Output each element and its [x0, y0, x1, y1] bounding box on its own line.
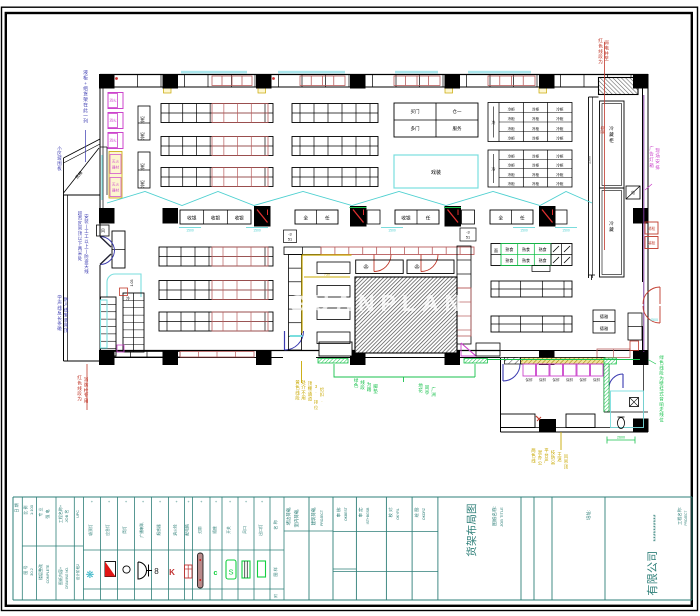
svg-text:冷柜: 冷柜 — [140, 116, 145, 124]
svg-text:30.2: 30.2 — [29, 567, 34, 576]
svg-text:冷柜: 冷柜 — [140, 132, 145, 140]
svg-text:冷: 冷 — [492, 119, 496, 125]
svg-text:任: 任 — [426, 215, 431, 222]
svg-text:OKYRL: OKYRL — [396, 508, 400, 520]
svg-text:.: . — [321, 397, 322, 402]
svg-text:JOB 名: JOB 名 — [63, 510, 69, 523]
svg-text:收银: 收银 — [401, 215, 411, 222]
svg-text:垫: 垫 — [373, 388, 378, 394]
svg-text:德雅: 德雅 — [600, 313, 608, 320]
svg-text:熟食: 熟食 — [505, 246, 513, 252]
svg-text:冷: 冷 — [492, 166, 496, 172]
svg-text:冷柜: 冷柜 — [532, 106, 540, 111]
svg-text:审 核:: 审 核: — [335, 507, 342, 518]
svg-text:绿: 绿 — [659, 354, 664, 360]
svg-text:冷柜: 冷柜 — [140, 163, 145, 171]
svg-text:保鲜: 保鲜 — [552, 377, 560, 382]
svg-text:亭: 亭 — [425, 389, 430, 395]
svg-text:专 业: 专 业 — [37, 507, 43, 516]
svg-text:冷: 冷 — [609, 125, 614, 132]
svg-text:OKBEST: OKBEST — [344, 507, 348, 521]
svg-text:图 号: 图 号 — [22, 565, 28, 574]
svg-text:任: 任 — [325, 215, 330, 222]
svg-text:柜: 柜 — [609, 137, 614, 144]
svg-text:保鲜: 保鲜 — [539, 377, 547, 382]
svg-text:烟感器: 烟感器 — [156, 524, 161, 536]
svg-text:培址:: 培址: — [585, 510, 592, 520]
svg-text:51: 51 — [466, 236, 470, 240]
svg-text:电: 电 — [604, 44, 609, 50]
svg-text:熟食: 熟食 — [539, 246, 547, 252]
svg-text:-3: -3 — [466, 231, 469, 235]
svg-text:冷柜: 冷柜 — [556, 181, 564, 186]
svg-text:K: K — [169, 568, 175, 577]
svg-text:全: 全 — [303, 215, 308, 221]
svg-text:1500: 1500 — [520, 229, 528, 233]
svg-text:1500: 1500 — [253, 229, 261, 233]
svg-text:1500: 1500 — [186, 229, 194, 233]
svg-text:器材: 器材 — [112, 188, 119, 193]
svg-text:保鲜: 保鲜 — [525, 377, 533, 382]
svg-text:冷柜: 冷柜 — [532, 153, 540, 158]
svg-text:货: 货 — [83, 91, 88, 98]
svg-text:-3: -3 — [288, 233, 291, 237]
svg-text:藏: 藏 — [609, 131, 614, 138]
svg-text:组: 组 — [83, 85, 88, 92]
svg-text:货架布局图: 货架布局图 — [465, 503, 478, 557]
svg-text:段: 段 — [295, 395, 300, 402]
svg-text:灭火: 灭火 — [112, 159, 119, 164]
svg-text:熟食: 熟食 — [522, 246, 530, 252]
svg-text:色: 色 — [354, 382, 359, 388]
svg-text:洲: 洲 — [431, 392, 436, 397]
svg-text:顶: 顶 — [64, 328, 69, 334]
svg-text:戏装: 戏装 — [431, 169, 441, 176]
svg-text:收银: 收银 — [211, 215, 221, 222]
svg-text:GUANPLAN: GUANPLAN — [289, 290, 467, 316]
svg-text:处: 处 — [78, 255, 83, 262]
svg-text:楼层整改: 楼层整改 — [37, 564, 43, 580]
svg-text:用: 用 — [84, 399, 89, 405]
svg-text:冷柜: 冷柜 — [508, 106, 516, 111]
svg-text:用: 用 — [301, 396, 306, 402]
svg-text:全: 全 — [498, 215, 503, 221]
svg-text:强 电: 强 电 — [44, 509, 50, 518]
svg-text:冷柜: 冷柜 — [556, 106, 564, 111]
svg-text:日 期: 日 期 — [14, 503, 20, 513]
svg-text:冷柜: 冷柜 — [532, 116, 540, 121]
svg-text:✇: ✇ — [363, 264, 368, 271]
svg-text:筒灯: 筒灯 — [122, 526, 127, 534]
svg-text:配电箱: 配电箱 — [185, 524, 190, 536]
svg-text:❋: ❋ — [86, 570, 94, 581]
svg-text:风口: 风口 — [243, 526, 247, 534]
svg-text:插座: 插座 — [212, 526, 217, 534]
svg-text:花: 花 — [418, 387, 423, 394]
svg-text:冷: 冷 — [126, 296, 130, 301]
svg-text:迷: 迷 — [557, 456, 562, 463]
svg-text:1500: 1500 — [562, 229, 570, 233]
svg-text:色: 色 — [659, 359, 664, 365]
svg-text:冷柜: 冷柜 — [556, 153, 564, 158]
svg-text:冷柜: 冷柜 — [556, 116, 564, 121]
svg-text:+: + — [142, 499, 145, 504]
svg-text:绿: 绿 — [354, 377, 359, 383]
svg-text:**********: ********** — [653, 514, 660, 542]
svg-text:色: 色 — [598, 42, 603, 48]
svg-text:2600: 2600 — [617, 436, 625, 440]
svg-text:线: 线 — [531, 457, 536, 463]
svg-text:线: 线 — [84, 268, 89, 274]
svg-text:附: 附 — [273, 594, 278, 598]
svg-text:✇: ✇ — [414, 264, 419, 271]
svg-text:消栓: 消栓 — [648, 241, 656, 246]
svg-text:冷: 冷 — [609, 220, 614, 227]
svg-text:段: 段 — [360, 384, 365, 391]
svg-text:+: + — [125, 499, 128, 504]
svg-text:+: + — [108, 499, 111, 504]
svg-text:熟食: 熟食 — [522, 257, 530, 263]
svg-text:广播喇叭: 广播喇叭 — [139, 522, 144, 537]
svg-text:吸顶灯: 吸顶灯 — [88, 524, 93, 536]
svg-text:冷柜: 冷柜 — [556, 172, 564, 177]
svg-text:.: . — [315, 389, 316, 394]
svg-text:收银: 收银 — [187, 215, 197, 222]
svg-text:公: 公 — [538, 460, 543, 465]
svg-text:冷柜: 冷柜 — [508, 116, 516, 121]
svg-text:任: 任 — [520, 215, 525, 222]
svg-text:在: 在 — [83, 101, 88, 108]
svg-text:熟食: 熟食 — [539, 257, 547, 263]
svg-text:冷柜: 冷柜 — [532, 172, 540, 177]
svg-text:S: S — [228, 568, 233, 577]
svg-text:踏: 踏 — [367, 386, 372, 393]
svg-text:+: + — [91, 499, 94, 504]
svg-text:吊: 吊 — [551, 460, 555, 466]
svg-text:图 样: 图 样 — [272, 567, 279, 577]
svg-text:堵边荷载,: 堵边荷载, — [285, 507, 292, 526]
svg-text:严: 严 — [544, 458, 549, 464]
svg-text:线: 线 — [77, 385, 82, 391]
svg-text:色: 色 — [77, 379, 82, 385]
svg-text:绘 图:: 绘 图: — [413, 507, 420, 518]
svg-text:线: 线 — [57, 304, 62, 310]
svg-text:设计阶段2: 设计阶段2 — [75, 564, 80, 580]
svg-text:冷柜: 冷柜 — [508, 136, 516, 141]
svg-text:为: 为 — [598, 59, 603, 66]
svg-text:图纸名称:: 图纸名称: — [491, 506, 498, 526]
svg-text:8: 8 — [154, 567, 159, 576]
svg-text:冷柜: 冷柜 — [532, 126, 540, 131]
svg-text:冷柜: 冷柜 — [508, 153, 516, 158]
svg-text:建筑荷载,: 建筑荷载, — [310, 507, 317, 526]
svg-text:挂: 挂 — [659, 385, 664, 391]
svg-text:OKDRZ: OKDRZ — [422, 508, 426, 520]
svg-text:仓一: 仓一 — [453, 108, 462, 114]
svg-text:审 定:: 审 定: — [357, 507, 364, 518]
svg-text:岗: 岗 — [425, 384, 430, 390]
svg-text:此: 此 — [83, 107, 88, 114]
svg-text:+: + — [175, 499, 178, 504]
svg-text:保鲜: 保鲜 — [566, 377, 574, 382]
svg-text:风: 风 — [101, 228, 105, 233]
svg-text:有限公司: 有限公司 — [645, 550, 659, 595]
svg-text:架: 架 — [83, 97, 88, 103]
svg-text:德雅: 德雅 — [600, 325, 608, 332]
svg-text:冷柜: 冷柜 — [140, 180, 145, 188]
svg-text:消火栓: 消火栓 — [173, 524, 178, 536]
svg-text:冷柜: 冷柜 — [508, 181, 516, 186]
svg-text:收银: 收银 — [235, 215, 245, 222]
svg-text:学: 学 — [57, 294, 62, 300]
svg-text:熟食: 熟食 — [505, 257, 513, 263]
svg-text:消火: 消火 — [109, 118, 117, 123]
svg-text:线: 线 — [64, 306, 69, 312]
svg-text:线: 线 — [598, 48, 603, 54]
svg-text:4500: 4500 — [650, 318, 658, 322]
svg-text:c: c — [214, 570, 218, 577]
svg-text:冷柜: 冷柜 — [508, 172, 516, 177]
svg-text:IST+BGSB: IST+BGSB — [366, 507, 370, 524]
svg-text:器材: 器材 — [112, 165, 119, 170]
svg-text:+: + — [261, 499, 264, 504]
svg-text:红: 红 — [77, 374, 82, 380]
svg-text:1500: 1500 — [388, 229, 396, 233]
svg-text:COMPLETE: COMPLETE — [46, 564, 50, 583]
svg-text:箱: 箱 — [649, 162, 654, 169]
svg-text:1:100: 1:100 — [29, 504, 34, 515]
svg-text:冷柜: 冷柜 — [532, 136, 540, 141]
svg-text:冷柜: 冷柜 — [508, 163, 516, 168]
svg-text:DRAWING NO.: DRAWING NO. — [65, 567, 69, 589]
svg-text:电: 电 — [631, 189, 635, 195]
svg-text:服务: 服务 — [453, 125, 462, 132]
svg-text:面: 面 — [494, 248, 498, 253]
svg-text:排: 排 — [655, 164, 660, 171]
svg-text:色: 色 — [295, 384, 300, 390]
svg-text:色: 色 — [531, 452, 536, 458]
svg-text:+: + — [84, 82, 87, 87]
svg-text:位: 位 — [659, 416, 664, 422]
svg-text:室内荷载,: 室内荷载, — [293, 509, 300, 528]
svg-text:冷柜: 冷柜 — [532, 163, 540, 168]
svg-text:至: 至 — [604, 56, 609, 61]
svg-text:顶: 顶 — [564, 464, 569, 470]
svg-text:冷柜: 冷柜 — [556, 126, 564, 131]
svg-text:校 对:: 校 对: — [387, 507, 394, 518]
svg-text:冷柜: 冷柜 — [556, 163, 564, 168]
svg-text:+: + — [215, 499, 218, 504]
svg-text:条: 条 — [57, 320, 62, 326]
svg-text:板: 板 — [57, 165, 62, 172]
svg-text:名 称: 名 称 — [272, 520, 279, 530]
svg-text:PROJECT: PROJECT — [320, 510, 324, 526]
svg-text:灭火: 灭火 — [112, 182, 119, 187]
svg-text:列: 列 — [83, 118, 88, 125]
svg-text:消火: 消火 — [109, 98, 117, 103]
svg-text:碰: 碰 — [57, 325, 62, 331]
svg-text:买门: 买门 — [411, 108, 420, 115]
svg-text:工程名称:: 工程名称: — [676, 507, 683, 525]
svg-text:线: 线 — [295, 389, 300, 395]
svg-text:藏: 藏 — [609, 226, 614, 233]
svg-text:线: 线 — [659, 364, 664, 370]
svg-text:冷柜: 冷柜 — [508, 126, 516, 131]
svg-text:壁: 壁 — [659, 380, 664, 386]
svg-text:冷柜: 冷柜 — [532, 181, 540, 186]
svg-text:UPC: UPC — [76, 510, 80, 518]
svg-text:+: + — [159, 499, 162, 504]
svg-text:灯带: 灯带 — [197, 526, 202, 534]
svg-text:JOB TITLE: JOB TITLE — [499, 507, 504, 527]
svg-text:柜: 柜 — [83, 74, 88, 81]
svg-text:红: 红 — [598, 37, 603, 43]
svg-text:+: + — [245, 499, 248, 504]
svg-text:弱电: 弱电 — [599, 126, 605, 134]
svg-text:51: 51 — [288, 238, 292, 242]
svg-text:位: 位 — [314, 404, 318, 410]
svg-text:图纸内容+: 图纸内容+ — [57, 566, 63, 585]
svg-text:冷柜: 冷柜 — [556, 136, 564, 141]
svg-text:1.03: 1.03 — [130, 280, 134, 287]
svg-text:消栓: 消栓 — [648, 226, 656, 231]
svg-text:+: + — [229, 499, 232, 504]
svg-text:线: 线 — [659, 411, 664, 417]
svg-text:工程名称+: 工程名称+ — [57, 504, 63, 523]
svg-text:+: + — [200, 499, 203, 504]
svg-text:出口灯: 出口灯 — [258, 524, 263, 536]
svg-text:道: 道 — [308, 396, 313, 403]
svg-text:液: 液 — [83, 69, 88, 76]
svg-text:1500: 1500 — [588, 156, 592, 164]
svg-text:为: 为 — [77, 396, 82, 403]
svg-text:地: 地 — [418, 382, 423, 388]
svg-text:式: 式 — [659, 390, 664, 396]
svg-text:应急灯: 应急灯 — [105, 524, 110, 536]
svg-text:多门: 多门 — [411, 125, 420, 132]
svg-text:开关: 开关 — [226, 526, 231, 534]
svg-text:保鲜: 保鲜 — [593, 377, 601, 382]
svg-text:PROJECT: PROJECT — [684, 511, 688, 526]
svg-text:一: 一 — [83, 114, 88, 119]
svg-text:线: 线 — [360, 379, 365, 385]
svg-text:比 例: 比 例 — [22, 505, 28, 514]
svg-text:消火: 消火 — [109, 138, 117, 143]
svg-text:+: + — [187, 499, 190, 504]
svg-text:保鲜: 保鲜 — [579, 377, 587, 382]
